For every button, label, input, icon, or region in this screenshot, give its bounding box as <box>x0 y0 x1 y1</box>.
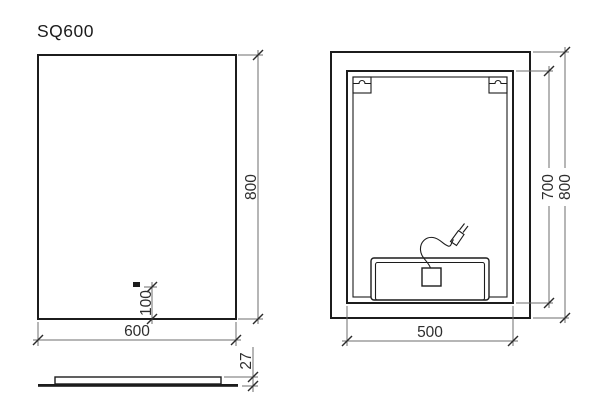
junction-box <box>422 268 441 286</box>
cable-offset-label: 100 <box>138 290 155 316</box>
side-view: 27 <box>38 347 258 392</box>
front-width-dimension: 600 <box>33 322 241 346</box>
cable-outlet-marker <box>133 282 140 287</box>
back-inner-height-label: 700 <box>540 174 557 200</box>
front-view: SQ600 800 600 100 <box>33 21 263 346</box>
front-height-dimension: 800 <box>238 50 263 324</box>
thickness-label: 27 <box>238 352 255 369</box>
mirror-front-outline <box>38 55 236 319</box>
back-view: 500 700 800 <box>331 47 574 346</box>
front-height-label: 800 <box>243 174 260 200</box>
model-title: SQ600 <box>37 21 94 41</box>
drawing-page: SQ600 800 600 100 <box>0 0 600 420</box>
technical-drawing: SQ600 800 600 100 <box>0 0 600 420</box>
back-height-label: 800 <box>557 174 574 200</box>
front-width-label: 600 <box>124 323 150 340</box>
backframe-profile <box>55 377 221 384</box>
back-width-label: 500 <box>417 324 443 341</box>
